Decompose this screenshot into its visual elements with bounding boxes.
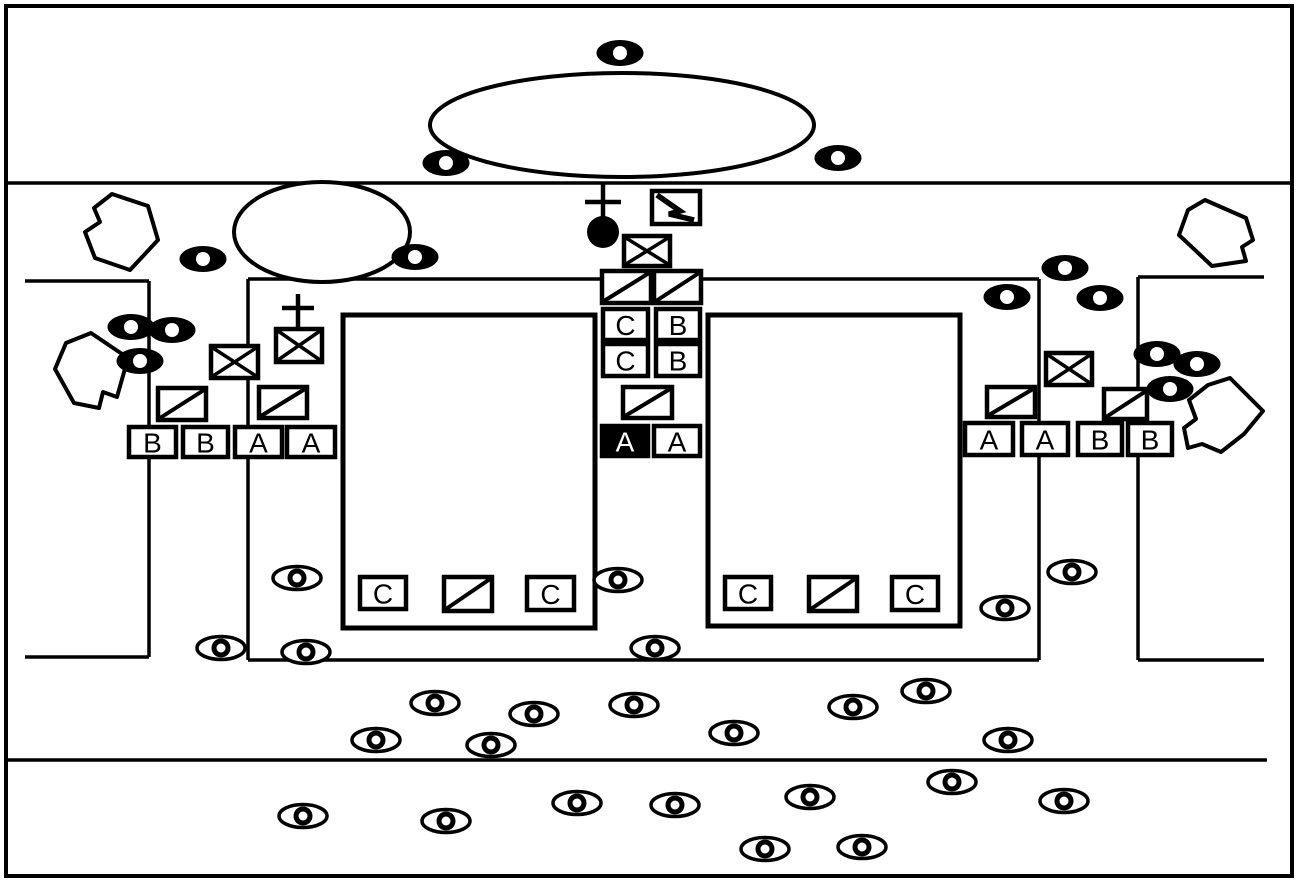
letter-box-label: A <box>302 428 321 459</box>
eye-symbol-filled-hole <box>1190 357 1204 371</box>
site-plan-diagram: BBAAAABBCBCBAACCCC <box>0 0 1299 882</box>
letter-box-label: C <box>738 579 758 610</box>
eye-symbol-outlined-hole <box>530 710 539 719</box>
diagram-canvas: BBAAAABBCBCBAACCCC <box>0 0 1299 882</box>
eye-symbol-outlined-hole <box>293 574 302 583</box>
eye-symbol-filled-hole <box>196 252 210 266</box>
eye-symbol-outlined-hole <box>849 703 858 712</box>
eye-symbol-filled-hole <box>439 156 453 170</box>
eye-symbol-outlined-hole <box>630 701 639 710</box>
eye-symbol-outlined-hole <box>442 817 451 826</box>
eye-symbol-outlined-hole <box>671 801 680 810</box>
eye-symbol-filled-hole <box>1093 291 1107 305</box>
letter-box-label: A <box>980 425 999 456</box>
eye-symbol-outlined-hole <box>217 644 226 653</box>
letter-box-label: B <box>1091 425 1110 456</box>
eye-symbol-outlined-hole <box>299 812 308 821</box>
eye-symbol-outlined-hole <box>372 736 381 745</box>
eye-symbol-outlined-hole <box>730 729 739 738</box>
eye-symbol-outlined-hole <box>948 778 957 787</box>
eye-symbol-outlined-hole <box>1001 604 1010 613</box>
eye-symbol-filled-hole <box>613 46 627 60</box>
eye-symbol-outlined-hole <box>651 644 660 653</box>
eye-symbol-filled-hole <box>1150 347 1164 361</box>
eye-symbol-filled-hole <box>1163 382 1177 396</box>
letter-box-label: C <box>373 579 393 610</box>
eye-symbol-outlined-hole <box>302 648 311 657</box>
letter-box-label: C <box>615 310 635 341</box>
eye-symbol-outlined-hole <box>761 845 770 854</box>
eye-symbol-filled-hole <box>831 151 845 165</box>
letter-box-label: A <box>616 427 635 458</box>
small-oval <box>234 182 410 282</box>
eye-symbol-outlined-hole <box>431 699 440 708</box>
eye-symbol-filled-hole <box>1000 290 1014 304</box>
eye-symbol-outlined-hole <box>1004 736 1013 745</box>
eye-symbol-filled-hole <box>1058 261 1072 275</box>
eye-symbol-outlined-hole <box>806 793 815 802</box>
eye-symbol-filled-hole <box>133 354 147 368</box>
letter-box-label: B <box>143 428 162 459</box>
letter-box-label: C <box>540 579 560 610</box>
eye-symbol-outlined-hole <box>573 799 582 808</box>
eye-symbol-outlined-hole <box>614 576 623 585</box>
eye-symbol-outlined-hole <box>1068 568 1077 577</box>
eye-symbol-filled-hole <box>408 250 422 264</box>
filled-circle-marker <box>587 216 619 248</box>
eye-symbol-outlined-hole <box>922 687 931 696</box>
large-oval <box>430 73 814 177</box>
letter-box-label: B <box>669 346 688 377</box>
letter-box-label: B <box>1141 425 1160 456</box>
letter-box-label: A <box>668 427 687 458</box>
eye-symbol-filled-hole <box>124 320 138 334</box>
letter-box-label: C <box>615 346 635 377</box>
eye-symbol-outlined-hole <box>858 843 867 852</box>
eye-symbol-outlined-hole <box>487 741 496 750</box>
letter-box-label: C <box>905 579 925 610</box>
eye-symbol-filled-hole <box>165 323 179 337</box>
eye-symbol-outlined-hole <box>1060 797 1069 806</box>
letter-box-label: B <box>196 428 215 459</box>
letter-box-label: A <box>1036 425 1055 456</box>
letter-box-label: A <box>249 428 268 459</box>
letter-box-label: B <box>669 310 688 341</box>
